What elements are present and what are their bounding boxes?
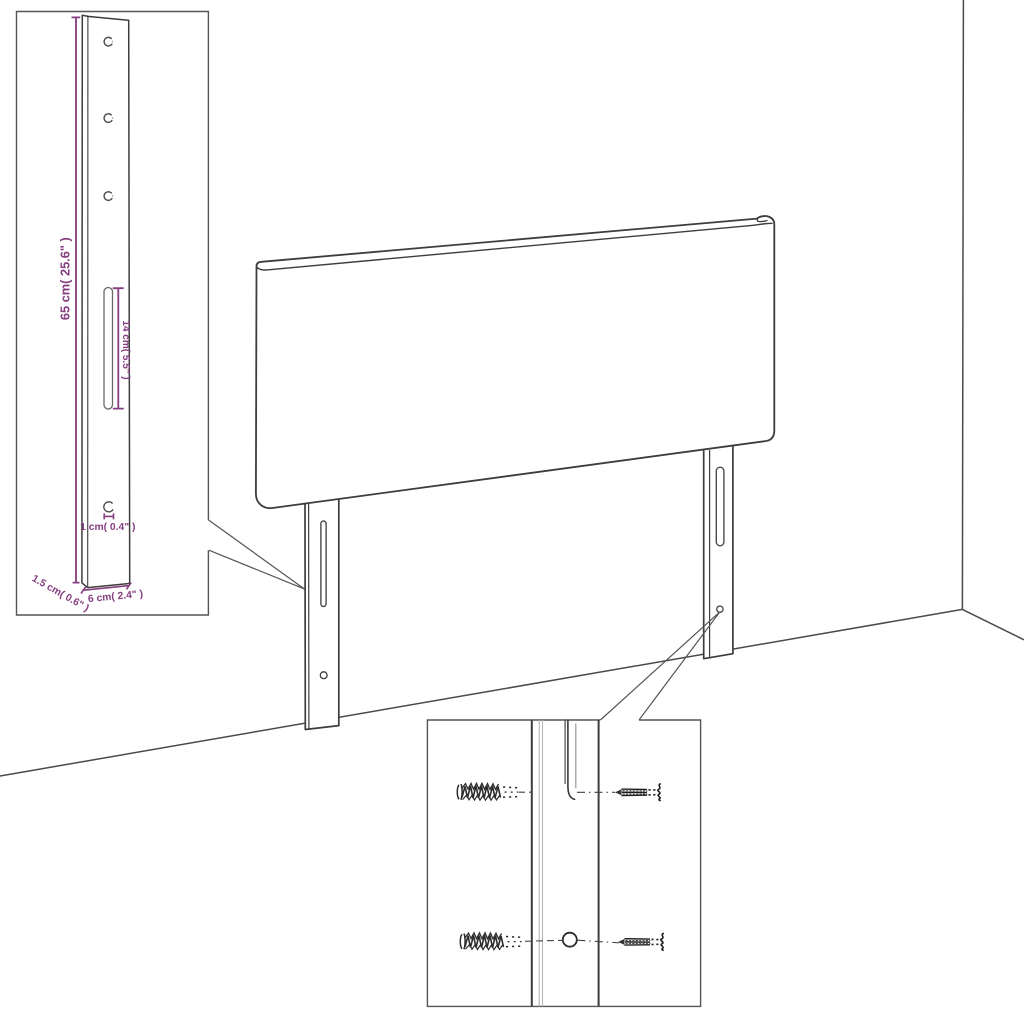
svg-text:14 cm( 5.5" ): 14 cm( 5.5" ) — [120, 320, 131, 379]
svg-text:65 cm( 25.6" ): 65 cm( 25.6" ) — [57, 237, 72, 320]
svg-text:1 cm( 0.4" ): 1 cm( 0.4" ) — [80, 522, 135, 533]
